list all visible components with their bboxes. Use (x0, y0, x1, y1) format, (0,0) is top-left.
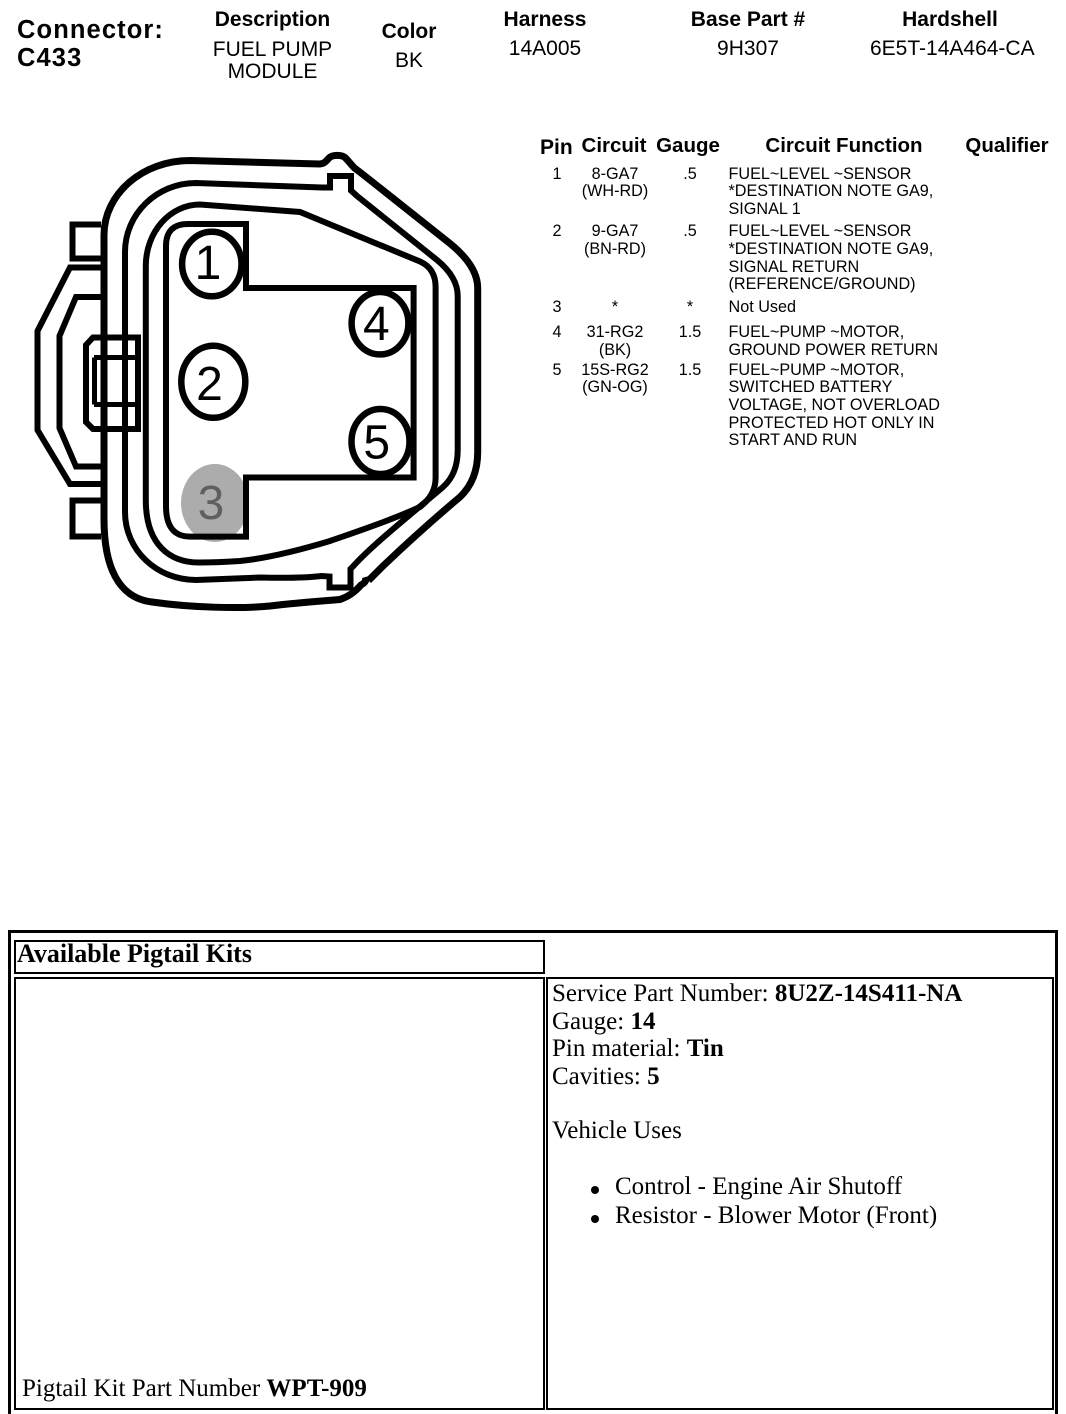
svg-text:4: 4 (363, 298, 390, 351)
svg-text:3: 3 (198, 477, 225, 530)
svg-text:1: 1 (195, 237, 222, 290)
svg-text:2: 2 (196, 358, 223, 411)
svg-text:5: 5 (363, 417, 390, 470)
